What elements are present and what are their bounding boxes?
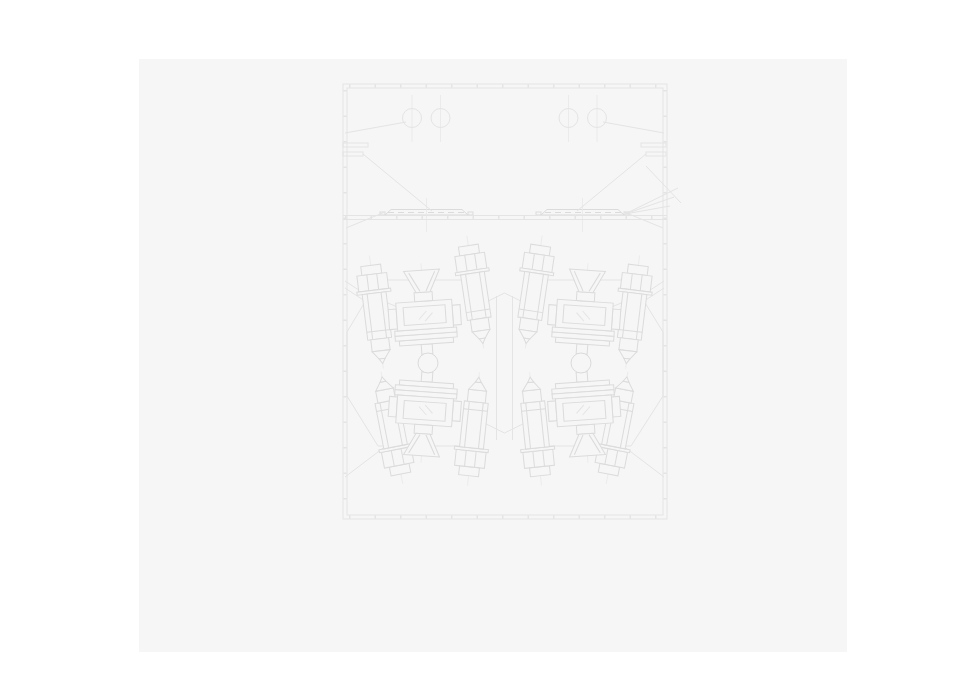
drawing-panel xyxy=(139,59,847,652)
drawing-canvas xyxy=(0,0,961,694)
technical-drawing xyxy=(0,0,961,694)
